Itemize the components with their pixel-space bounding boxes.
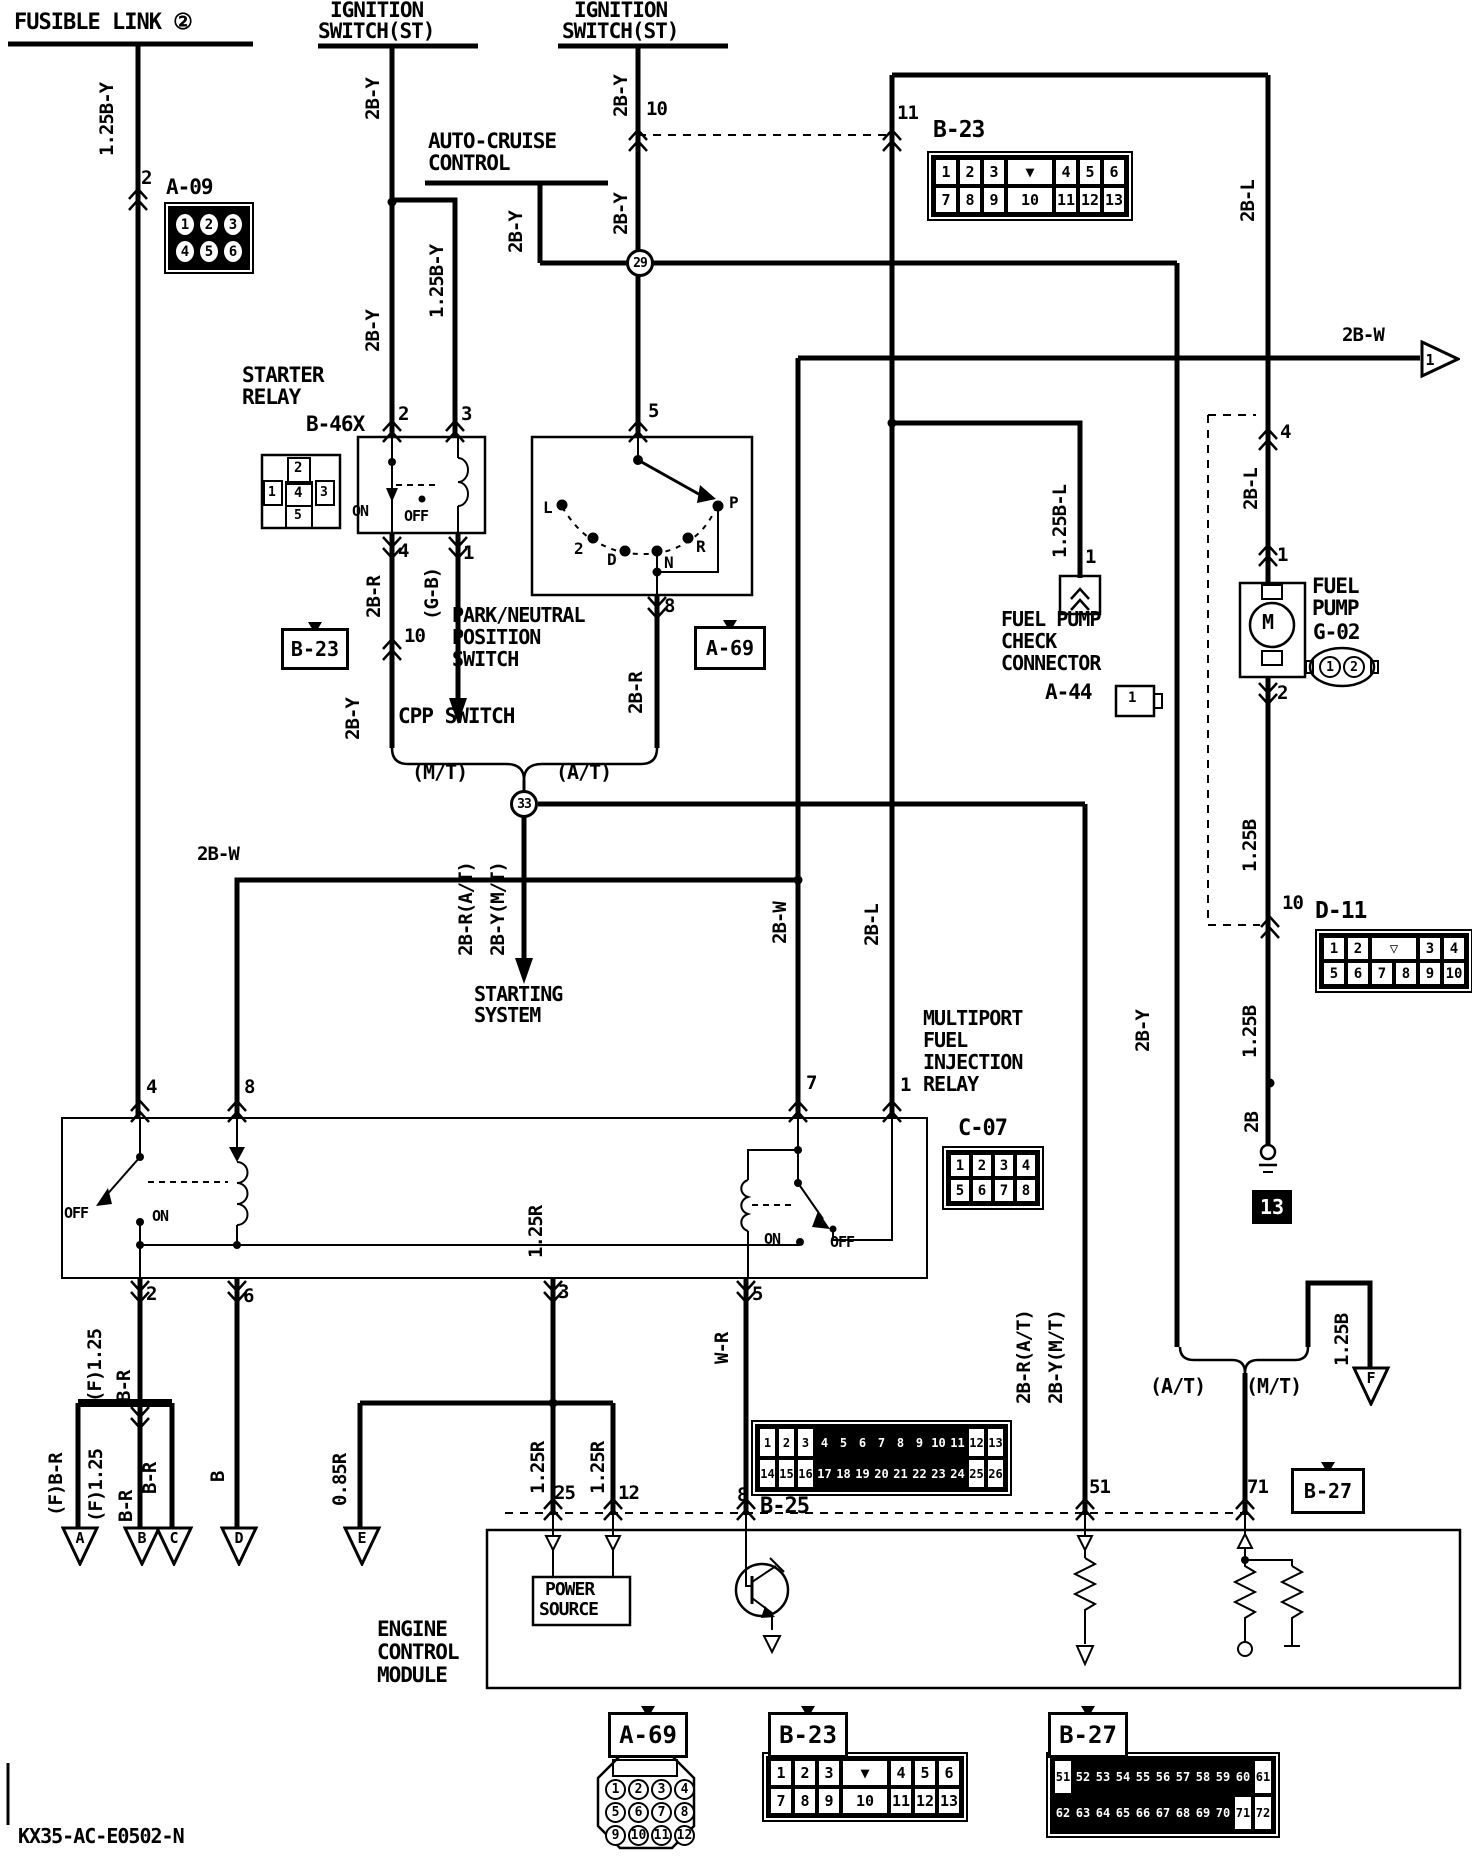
- conn-b46x-name: B-46X: [306, 414, 364, 435]
- conn-b23-top-pin-4: 4: [1054, 158, 1078, 186]
- conn-b23-top-pin-3: 3: [982, 158, 1006, 186]
- ignition-2-line2: SWITCH(ST): [562, 21, 678, 42]
- conn-b27-bottom-pin-54: 54: [1113, 1759, 1133, 1795]
- conn-b25-pin-25: 25: [967, 1458, 986, 1489]
- wire-gb: (G-B): [423, 568, 442, 620]
- internal-lines: [104, 437, 1308, 1646]
- conn-b27-bottom: 5152535455565758596061626364656667686970…: [1050, 1756, 1276, 1834]
- wire-2by-ign1-a: 2B-Y: [364, 78, 383, 120]
- conn-b27-bottom-pin-57: 57: [1173, 1759, 1193, 1795]
- splice-10b-label: 10: [404, 627, 425, 646]
- fpc-title-1: FUEL PUMP: [1001, 609, 1100, 629]
- tag-b23-mid: B-23: [281, 628, 349, 670]
- b46x-cell-3: 3: [320, 486, 327, 499]
- pn-pos-n: N: [664, 555, 673, 571]
- conn-b23-bottom-pin-▼: ▼: [841, 1759, 889, 1787]
- conn-b25-pin-23: 23: [929, 1458, 948, 1489]
- conn-b23-bottom-pin-11: 11: [889, 1787, 913, 1815]
- conn-b27-bottom-pin-60: 60: [1233, 1759, 1253, 1795]
- conn-b23-top-pin-11: 11: [1054, 186, 1078, 214]
- m-relay-1: MULTIPORT: [923, 1008, 1022, 1028]
- fuel-pump-2: PUMP: [1312, 598, 1359, 619]
- conn-b23-top-name: B-23: [933, 119, 984, 142]
- pin-2-a09: 2: [141, 169, 151, 188]
- conn-d11-pin-4: 4: [1442, 936, 1466, 961]
- ecm-pin12: 12: [618, 1484, 639, 1503]
- conn-g02-name: G-02: [1313, 622, 1360, 643]
- conn-c07-pin-4: 4: [1015, 1153, 1037, 1178]
- ignition-1-line1: IGNITION: [330, 0, 423, 21]
- conn-b23-top-pin-2: 2: [958, 158, 982, 186]
- ecm-title-3: MODULE: [377, 1665, 447, 1686]
- power-source-1: POWER: [545, 1581, 594, 1599]
- splice-10-label: 10: [646, 100, 667, 119]
- conn-b23-top: 123▼45678910111213: [931, 155, 1129, 217]
- conn-b27-bottom-pin-55: 55: [1133, 1759, 1153, 1795]
- b46x-cell-1: 1: [268, 486, 275, 499]
- starting-system-2: SYSTEM: [474, 1005, 540, 1025]
- conn-b23-bottom-pin-5: 5: [913, 1759, 937, 1787]
- conn-b25-pin-5: 5: [834, 1427, 853, 1458]
- conn-c07-pin-8: 8: [1015, 1178, 1037, 1203]
- conn-b27-bottom-pin-53: 53: [1093, 1759, 1113, 1795]
- conn-a69-bottom-pin-12: 12: [674, 1825, 695, 1846]
- conn-b25-pin-18: 18: [834, 1458, 853, 1489]
- conn-b27-bottom-pin-68: 68: [1173, 1795, 1193, 1831]
- fp-pin2: 2: [1277, 684, 1287, 703]
- junction-29: 29: [626, 249, 654, 277]
- wire-125b-1: 1.25B: [1241, 820, 1260, 872]
- starter-relay-line2: RELAY: [242, 387, 300, 408]
- fpc-title-2: CHECK: [1001, 631, 1056, 651]
- arrow-1-out: 1: [1420, 340, 1460, 380]
- arrow-e: E: [343, 1526, 383, 1566]
- dashed-lines: [148, 135, 1260, 1513]
- wire-f125-b: (F)1.25: [87, 1449, 106, 1522]
- arrow-b-letter: B: [137, 1529, 146, 1547]
- conn-d11-pin-6: 6: [1346, 961, 1370, 986]
- conn-b25-pin-14: 14: [758, 1458, 777, 1489]
- conn-b25-pin-6: 6: [853, 1427, 872, 1458]
- conn-b23-top-pin-12: 12: [1078, 186, 1102, 214]
- relay-pin4: 4: [146, 1078, 156, 1097]
- b46x-cell-5: 5: [294, 509, 301, 522]
- wire-2bl-3: 2B-L: [1242, 468, 1261, 510]
- fpc-pin1: 1: [1085, 548, 1095, 567]
- wire-fbr: (F)B-R: [47, 1453, 66, 1516]
- b46x-pin1: 1: [463, 544, 473, 563]
- conn-d11-pin-10: 10: [1442, 961, 1466, 986]
- conn-b25-pin-12: 12: [967, 1427, 986, 1458]
- tag-a69-mid-label: A-69: [706, 636, 754, 660]
- conn-a69-bottom-pin-10: 10: [628, 1825, 649, 1846]
- chevron-marks: [129, 130, 1279, 1520]
- conn-b23-top-pin-5: 5: [1078, 158, 1102, 186]
- conn-b23-bottom-pin-6: 6: [937, 1759, 961, 1787]
- conn-b27-bottom-pin-52: 52: [1073, 1759, 1093, 1795]
- wire-085r: 0.85R: [331, 1454, 350, 1506]
- conn-b27-bottom-pin-62: 62: [1053, 1795, 1073, 1831]
- conn-d11-name: D-11: [1315, 900, 1366, 923]
- conn-b25-name: B-25: [760, 1496, 809, 1518]
- conn-b25-pin-4: 4: [815, 1427, 834, 1458]
- conn-a69-bottom-pin-4: 4: [674, 1779, 695, 1800]
- conn-a69-bottom-pin-6: 6: [628, 1802, 649, 1823]
- b46x-off: OFF: [404, 509, 428, 524]
- d11-pin10: 10: [1282, 894, 1303, 913]
- conn-a09-pin-4: 4: [174, 239, 196, 264]
- conn-b27-bottom-pin-56: 56: [1153, 1759, 1173, 1795]
- conn-c07-pin-5: 5: [949, 1178, 971, 1203]
- wire-br-top: B-R: [115, 1371, 134, 1402]
- conn-b27-bottom-pin-64: 64: [1093, 1795, 1113, 1831]
- conn-a09-name: A-09: [166, 177, 213, 198]
- wire-br-b: B-R: [117, 1491, 136, 1522]
- wire-2bl-1: 2B-L: [1239, 180, 1258, 222]
- conn-a09-pin-5: 5: [198, 239, 220, 264]
- fp-pin1: 1: [1277, 546, 1287, 565]
- pn-pin8: 8: [664, 597, 674, 616]
- conn-a09-pin-6: 6: [222, 239, 244, 264]
- b46x-cell-2: 2: [294, 461, 301, 475]
- wire-2bw-mid: 2B-W: [197, 845, 239, 864]
- wire-2by-ign2-b: 2B-Y: [612, 193, 631, 235]
- wire-2by-cpp: 2B-Y: [344, 698, 363, 740]
- conn-c07-pin-2: 2: [971, 1153, 993, 1178]
- relay-pin3: 3: [558, 1283, 568, 1302]
- wire-125by-1: 1.25B-Y: [98, 83, 117, 156]
- wire-2b: 2B: [1243, 1112, 1262, 1133]
- conn-b25-pin-11: 11: [948, 1427, 967, 1458]
- pn-pos-l: L: [543, 500, 552, 516]
- ignition-1-line2: SWITCH(ST): [318, 21, 434, 42]
- conn-a69-bottom-pin-5: 5: [605, 1802, 626, 1823]
- conn-b27-bottom-pin-63: 63: [1073, 1795, 1093, 1831]
- pn-title-3: SWITCH: [452, 649, 518, 669]
- arrow-e-letter: E: [357, 1529, 366, 1547]
- conn-c07-pin-7: 7: [993, 1178, 1015, 1203]
- conn-d11-pin-7: 7: [1370, 961, 1394, 986]
- conn-b27-bottom-pin-67: 67: [1153, 1795, 1173, 1831]
- fusible-link-title: FUSIBLE LINK ②: [14, 12, 192, 34]
- conn-b25-pin-16: 16: [796, 1458, 815, 1489]
- wire-f125-top: (F)1.25: [86, 1329, 105, 1402]
- conn-b25-pin-20: 20: [872, 1458, 891, 1489]
- tag-a69-bottom-label: A-69: [619, 1721, 677, 1749]
- arrow-d-letter: D: [234, 1529, 243, 1547]
- conn-b25-pin-13: 13: [986, 1427, 1005, 1458]
- conn-b23-top-pin-7: 7: [934, 186, 958, 214]
- b46x-on: ON: [352, 504, 368, 519]
- wire-2brat-1: 2B-R(A/T): [457, 862, 476, 956]
- conn-b23-bottom: 123▼45678910111213: [766, 1756, 964, 1818]
- conn-b25-pin-3: 3: [796, 1427, 815, 1458]
- wire-2by-ac: 2B-Y: [507, 211, 526, 253]
- conn-g02-pin-2: 2: [1343, 656, 1365, 678]
- conn-b23-bottom-pin-1: 1: [769, 1759, 793, 1787]
- conn-b23-bottom-pin-12: 12: [913, 1787, 937, 1815]
- arrow-f: F: [1352, 1366, 1392, 1406]
- conn-b25-pin-22: 22: [910, 1458, 929, 1489]
- arrow-1-out-letter: 1: [1425, 351, 1434, 369]
- conn-b27-bottom-pin-72: 72: [1253, 1795, 1273, 1831]
- pn-pos-r: R: [696, 539, 705, 555]
- conn-a69-bottom-pin-7: 7: [651, 1802, 672, 1823]
- relay-pin2: 2: [146, 1285, 156, 1304]
- cpp-mt: (M/T): [412, 762, 467, 782]
- tag-b27-bottom-label: B-27: [1059, 1721, 1117, 1749]
- conn-b25-pin-21: 21: [891, 1458, 910, 1489]
- m-relay-4: RELAY: [923, 1074, 978, 1094]
- pn-title-2: POSITION: [452, 627, 540, 647]
- conn-g02: 12: [1318, 655, 1366, 679]
- ground-13: 13: [1252, 1190, 1292, 1224]
- arrow-a-letter: A: [75, 1529, 84, 1547]
- conn-b25-pin-24: 24: [948, 1458, 967, 1489]
- conn-b23-bottom-pin-7: 7: [769, 1787, 793, 1815]
- pn-pos-p: P: [729, 495, 738, 511]
- conn-b25-pin-9: 9: [910, 1427, 929, 1458]
- conn-d11-pin-1: 1: [1322, 936, 1346, 961]
- wire-2by-long: 2B-Y: [1134, 1010, 1153, 1052]
- relay-pin6: 6: [243, 1287, 253, 1306]
- pn-pos-d: D: [607, 552, 616, 568]
- ecm-pin51: 51: [1089, 1478, 1110, 1497]
- conn-b27-bottom-pin-71: 71: [1233, 1795, 1253, 1831]
- wire-2br-2: 2B-R: [627, 672, 646, 714]
- ecm-title-2: CONTROL: [377, 1642, 459, 1663]
- conn-b23-bottom-pin-3: 3: [817, 1759, 841, 1787]
- relay-l-on: ON: [152, 1209, 168, 1224]
- conn-b23-bottom-pin-13: 13: [937, 1787, 961, 1815]
- conn-b23-top-pin-▼: ▼: [1006, 158, 1054, 186]
- conn-a09-pin-1: 1: [174, 212, 196, 237]
- relay-r-on: ON: [764, 1232, 780, 1247]
- wire-125bl: 1.25B-L: [1051, 485, 1070, 558]
- tag-b27-mid-label: B-27: [1304, 1479, 1352, 1503]
- conn-b23-bottom-pin-4: 4: [889, 1759, 913, 1787]
- conn-a69-bottom-pin-2: 2: [628, 1779, 649, 1800]
- wire-2bw-v: 2B-W: [771, 902, 790, 944]
- starting-system-1: STARTING: [474, 984, 562, 1004]
- wire-125r-1: 1.25R: [529, 1442, 548, 1494]
- conn-c07: 12345678: [946, 1150, 1040, 1206]
- wiring-diagram: FUSIBLE LINK ②1.25B-Y2A-09IGNITIONSWITCH…: [0, 0, 1472, 1858]
- conn-b27-bottom-pin-70: 70: [1213, 1795, 1233, 1831]
- conn-a09-pin-3: 3: [222, 212, 244, 237]
- conn-b27-bottom-pin-59: 59: [1213, 1759, 1233, 1795]
- wiring-lines: [0, 0, 1472, 1858]
- relay-l-off: OFF: [64, 1206, 88, 1221]
- tag-b27-bottom: B-27: [1048, 1712, 1128, 1758]
- cpp-switch-title: CPP SWITCH: [398, 706, 514, 727]
- conn-b23-top-pin-13: 13: [1102, 186, 1126, 214]
- tag-b23-mid-tab: [308, 622, 322, 629]
- ignition-2-line1: IGNITION: [574, 0, 667, 21]
- conn-b27-bottom-pin-69: 69: [1193, 1795, 1213, 1831]
- conn-b25-pin-26: 26: [986, 1458, 1005, 1489]
- wire-125r-2: 1.25R: [589, 1442, 608, 1494]
- b46x-pin2: 2: [398, 405, 408, 424]
- conn-b27-bottom-pin-58: 58: [1193, 1759, 1213, 1795]
- conn-b23-bottom-pin-8: 8: [793, 1787, 817, 1815]
- relay-r-off: OFF: [830, 1235, 854, 1250]
- wire-2bw-out: 2B-W: [1342, 326, 1384, 345]
- junction-33: 33: [510, 790, 538, 818]
- conn-c07-pin-3: 3: [993, 1153, 1015, 1178]
- fuel-pump-1: FUEL: [1312, 576, 1359, 597]
- conn-d11-pin-8: 8: [1394, 961, 1418, 986]
- ecm-title-1: ENGINE: [377, 1619, 447, 1640]
- wire-br-c: B-R: [141, 1463, 160, 1494]
- conn-b25-pin-10: 10: [929, 1427, 948, 1458]
- b46x-pin3: 3: [461, 405, 471, 424]
- bottom-mt: (M/T): [1246, 1376, 1301, 1396]
- arrow-a: A: [61, 1526, 101, 1566]
- fpc-title-3: CONNECTOR: [1001, 653, 1100, 673]
- conn-b23-top-pin-8: 8: [958, 186, 982, 214]
- conn-b25: 1234567891011121314151617181920212223242…: [755, 1424, 1008, 1492]
- wire-wr: W-R: [713, 1333, 732, 1364]
- conn-b25-pin-17: 17: [815, 1458, 834, 1489]
- wire-125by-branch: 1.25B-Y: [428, 245, 447, 318]
- power-source-2: SOURCE: [539, 1601, 598, 1619]
- conn-d11-pin-9: 9: [1418, 961, 1442, 986]
- b46x-pin4: 4: [398, 542, 408, 561]
- diagram-code-label: KX35-AC-E0502-N: [18, 1826, 184, 1846]
- conn-a69-bottom-pin-1: 1: [605, 1779, 626, 1800]
- b46x-cell-4: 4: [294, 486, 301, 500]
- starter-relay-line1: STARTER: [242, 365, 324, 386]
- conn-a69-bottom-pin-9: 9: [605, 1825, 626, 1846]
- ecm-pin8: 8: [737, 1486, 747, 1505]
- tag-b27-mid: B-27: [1291, 1468, 1365, 1514]
- wire-2brat-2: 2B-R(A/T): [1015, 1310, 1034, 1404]
- splice-11-label: 11: [897, 104, 918, 123]
- conn-b25-pin-8: 8: [891, 1427, 910, 1458]
- ecm-pin25: 25: [554, 1484, 575, 1503]
- arrow-c: C: [155, 1526, 195, 1566]
- conn-b25-pin-19: 19: [853, 1458, 872, 1489]
- conn-d11: 12▽345678910: [1319, 933, 1469, 989]
- tag-a69-mid: A-69: [694, 626, 766, 670]
- conn-b23-bottom-pin-2: 2: [793, 1759, 817, 1787]
- conn-d11-pin-5: 5: [1322, 961, 1346, 986]
- wire-2bymt-2: 2B-Y(M/T): [1047, 1310, 1066, 1404]
- conn-b23-top-pin-9: 9: [982, 186, 1006, 214]
- conn-a69-bottom-pin-11: 11: [651, 1825, 672, 1846]
- conn-b27-bottom-pin-61: 61: [1253, 1759, 1273, 1795]
- fp-motor-m: M: [1262, 612, 1273, 632]
- arrow-f-letter: F: [1366, 1369, 1375, 1387]
- auto-cruise-line2: CONTROL: [428, 153, 510, 174]
- pn-title-1: PARK/NEUTRAL: [452, 605, 585, 625]
- wire-125b-2: 1.25B: [1241, 1006, 1260, 1058]
- relay-pin8: 8: [244, 1078, 254, 1097]
- conn-c07-pin-1: 1: [949, 1153, 971, 1178]
- cpp-at: (A/T): [556, 762, 611, 782]
- relay-pin7: 7: [806, 1074, 816, 1093]
- conn-d11-pin-3: 3: [1418, 936, 1442, 961]
- bottom-at: (A/T): [1150, 1376, 1205, 1396]
- conn-b23-bottom-pin-9: 9: [817, 1787, 841, 1815]
- pn-pos-2: 2: [574, 541, 583, 557]
- conn-b23-top-pin-6: 6: [1102, 158, 1126, 186]
- auto-cruise-line1: AUTO-CRUISE: [428, 131, 556, 152]
- m-relay-3: INJECTION: [923, 1052, 1022, 1072]
- arrow-d: D: [220, 1526, 260, 1566]
- conn-b23-top-pin-1: 1: [934, 158, 958, 186]
- a44-pin1: 1: [1128, 691, 1135, 705]
- conn-b27-bottom-pin-51: 51: [1053, 1759, 1073, 1795]
- conn-d11-pin-2: 2: [1346, 936, 1370, 961]
- tag-b23-mid-label: B-23: [291, 637, 339, 661]
- conn-a69-bottom: 123456789101112: [604, 1778, 696, 1847]
- conn-b25-pin-15: 15: [777, 1458, 796, 1489]
- conn-d11-pin-▽: ▽: [1370, 936, 1418, 961]
- ecm-terminal-flags: [546, 1534, 1252, 1664]
- conn-b25-pin-2: 2: [777, 1427, 796, 1458]
- conn-b23-top-pin-10: 10: [1006, 186, 1054, 214]
- wire-125b-f: 1.25B: [1333, 1314, 1352, 1366]
- pn-pin5: 5: [648, 402, 658, 421]
- relay-pin5: 5: [752, 1285, 762, 1304]
- tag-b23-bottom: B-23: [768, 1712, 848, 1758]
- conn-c07-name: C-07: [958, 1118, 1007, 1140]
- fp-pin4: 4: [1280, 423, 1290, 442]
- wire-2by-ign1-b: 2B-Y: [364, 310, 383, 352]
- conn-b23-bottom-pin-10: 10: [841, 1787, 889, 1815]
- tag-b23-bottom-label: B-23: [779, 1721, 837, 1749]
- wire-125r-0: 1.25R: [527, 1206, 546, 1258]
- ecm-pin71: 71: [1247, 1478, 1268, 1497]
- conn-b25-pin-1: 1: [758, 1427, 777, 1458]
- conn-c07-pin-6: 6: [971, 1178, 993, 1203]
- conn-b27-bottom-pin-65: 65: [1113, 1795, 1133, 1831]
- wire-2br-1: 2B-R: [365, 576, 384, 618]
- conn-a69-bottom-pin-3: 3: [651, 1779, 672, 1800]
- wire-b-d: B: [209, 1472, 228, 1482]
- conn-g02-pin-1: 1: [1319, 656, 1341, 678]
- conn-a44-name: A-44: [1045, 682, 1092, 703]
- conn-b27-bottom-pin-66: 66: [1133, 1795, 1153, 1831]
- relay-pin1: 1: [900, 1076, 910, 1095]
- wire-2bymt-1: 2B-Y(M/T): [489, 862, 508, 956]
- conn-a09-pin-2: 2: [198, 212, 220, 237]
- conn-b25-pin-7: 7: [872, 1427, 891, 1458]
- conn-a09: 123456: [168, 206, 250, 270]
- arrow-c-letter: C: [169, 1529, 178, 1547]
- tag-a69-bottom: A-69: [608, 1712, 688, 1758]
- conn-a69-bottom-pin-8: 8: [674, 1802, 695, 1823]
- wire-2bl-2: 2B-L: [863, 904, 882, 946]
- wire-2by-ign2-a: 2B-Y: [612, 75, 631, 117]
- m-relay-2: FUEL: [923, 1030, 967, 1050]
